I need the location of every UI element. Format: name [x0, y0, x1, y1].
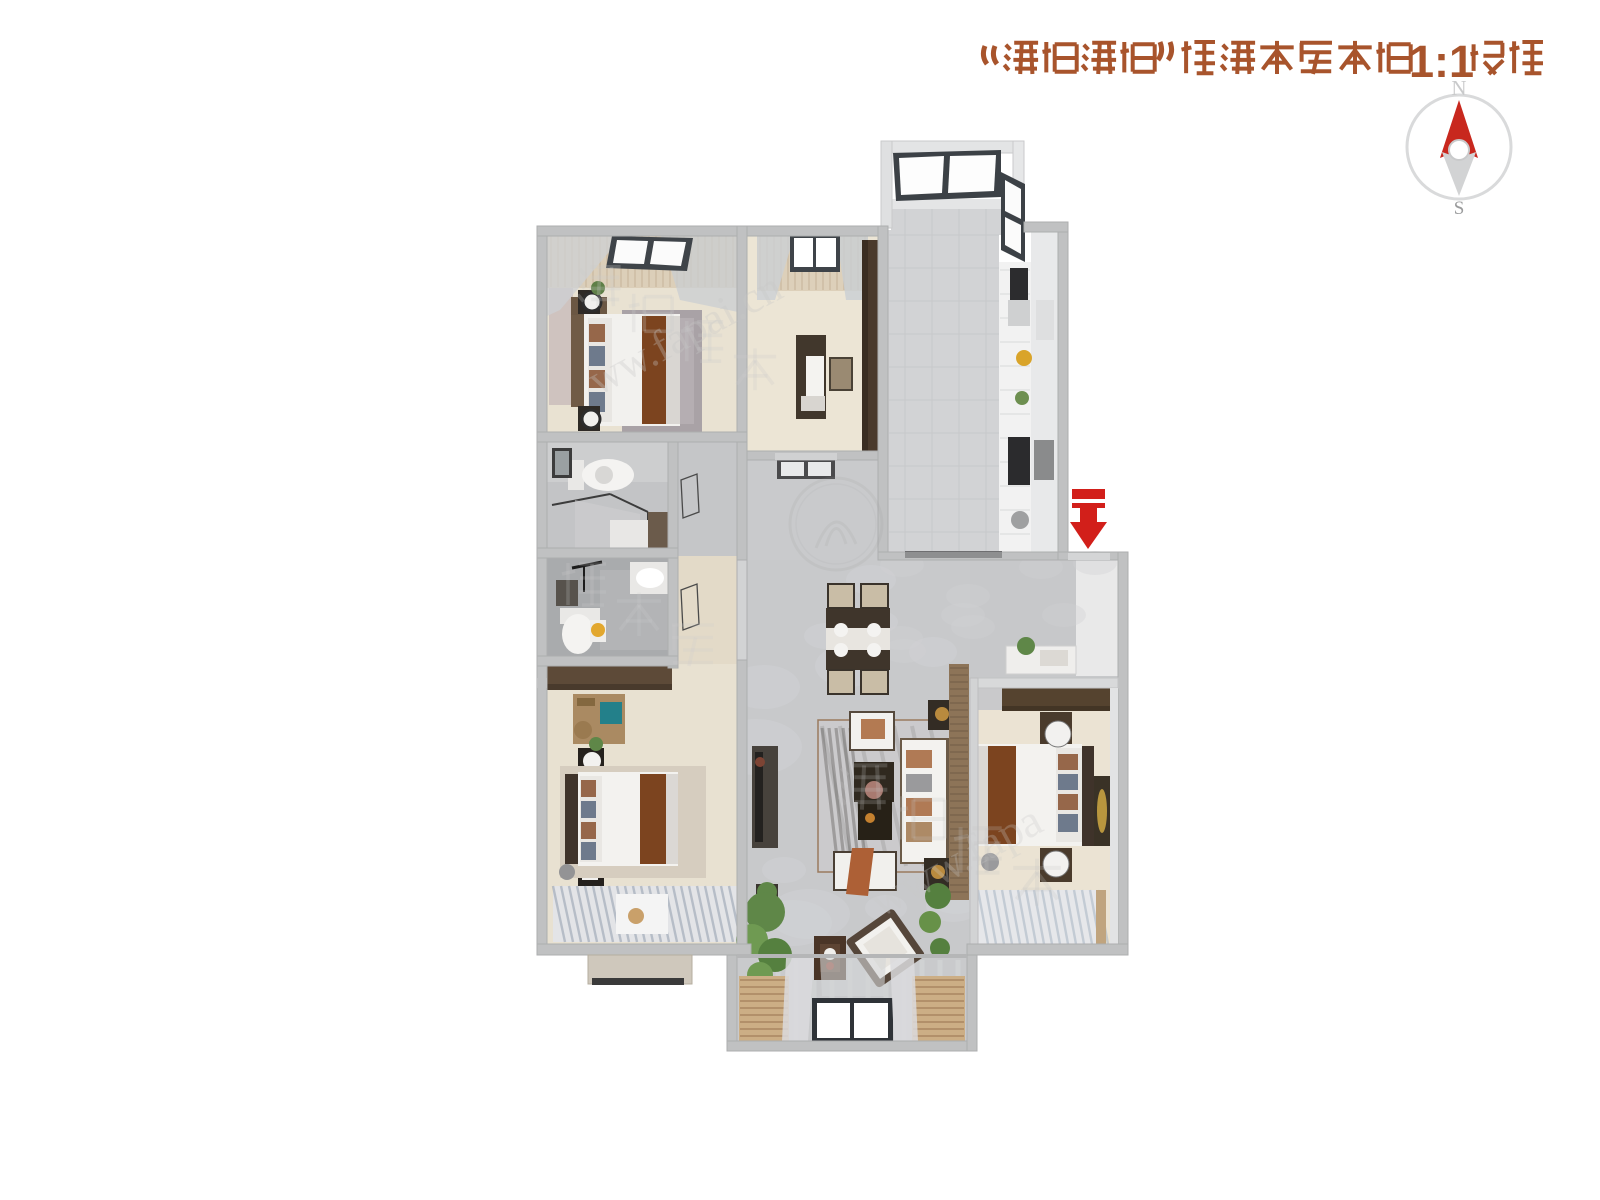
svg-text:S: S — [1454, 198, 1465, 219]
svg-text:N: N — [1451, 76, 1466, 100]
